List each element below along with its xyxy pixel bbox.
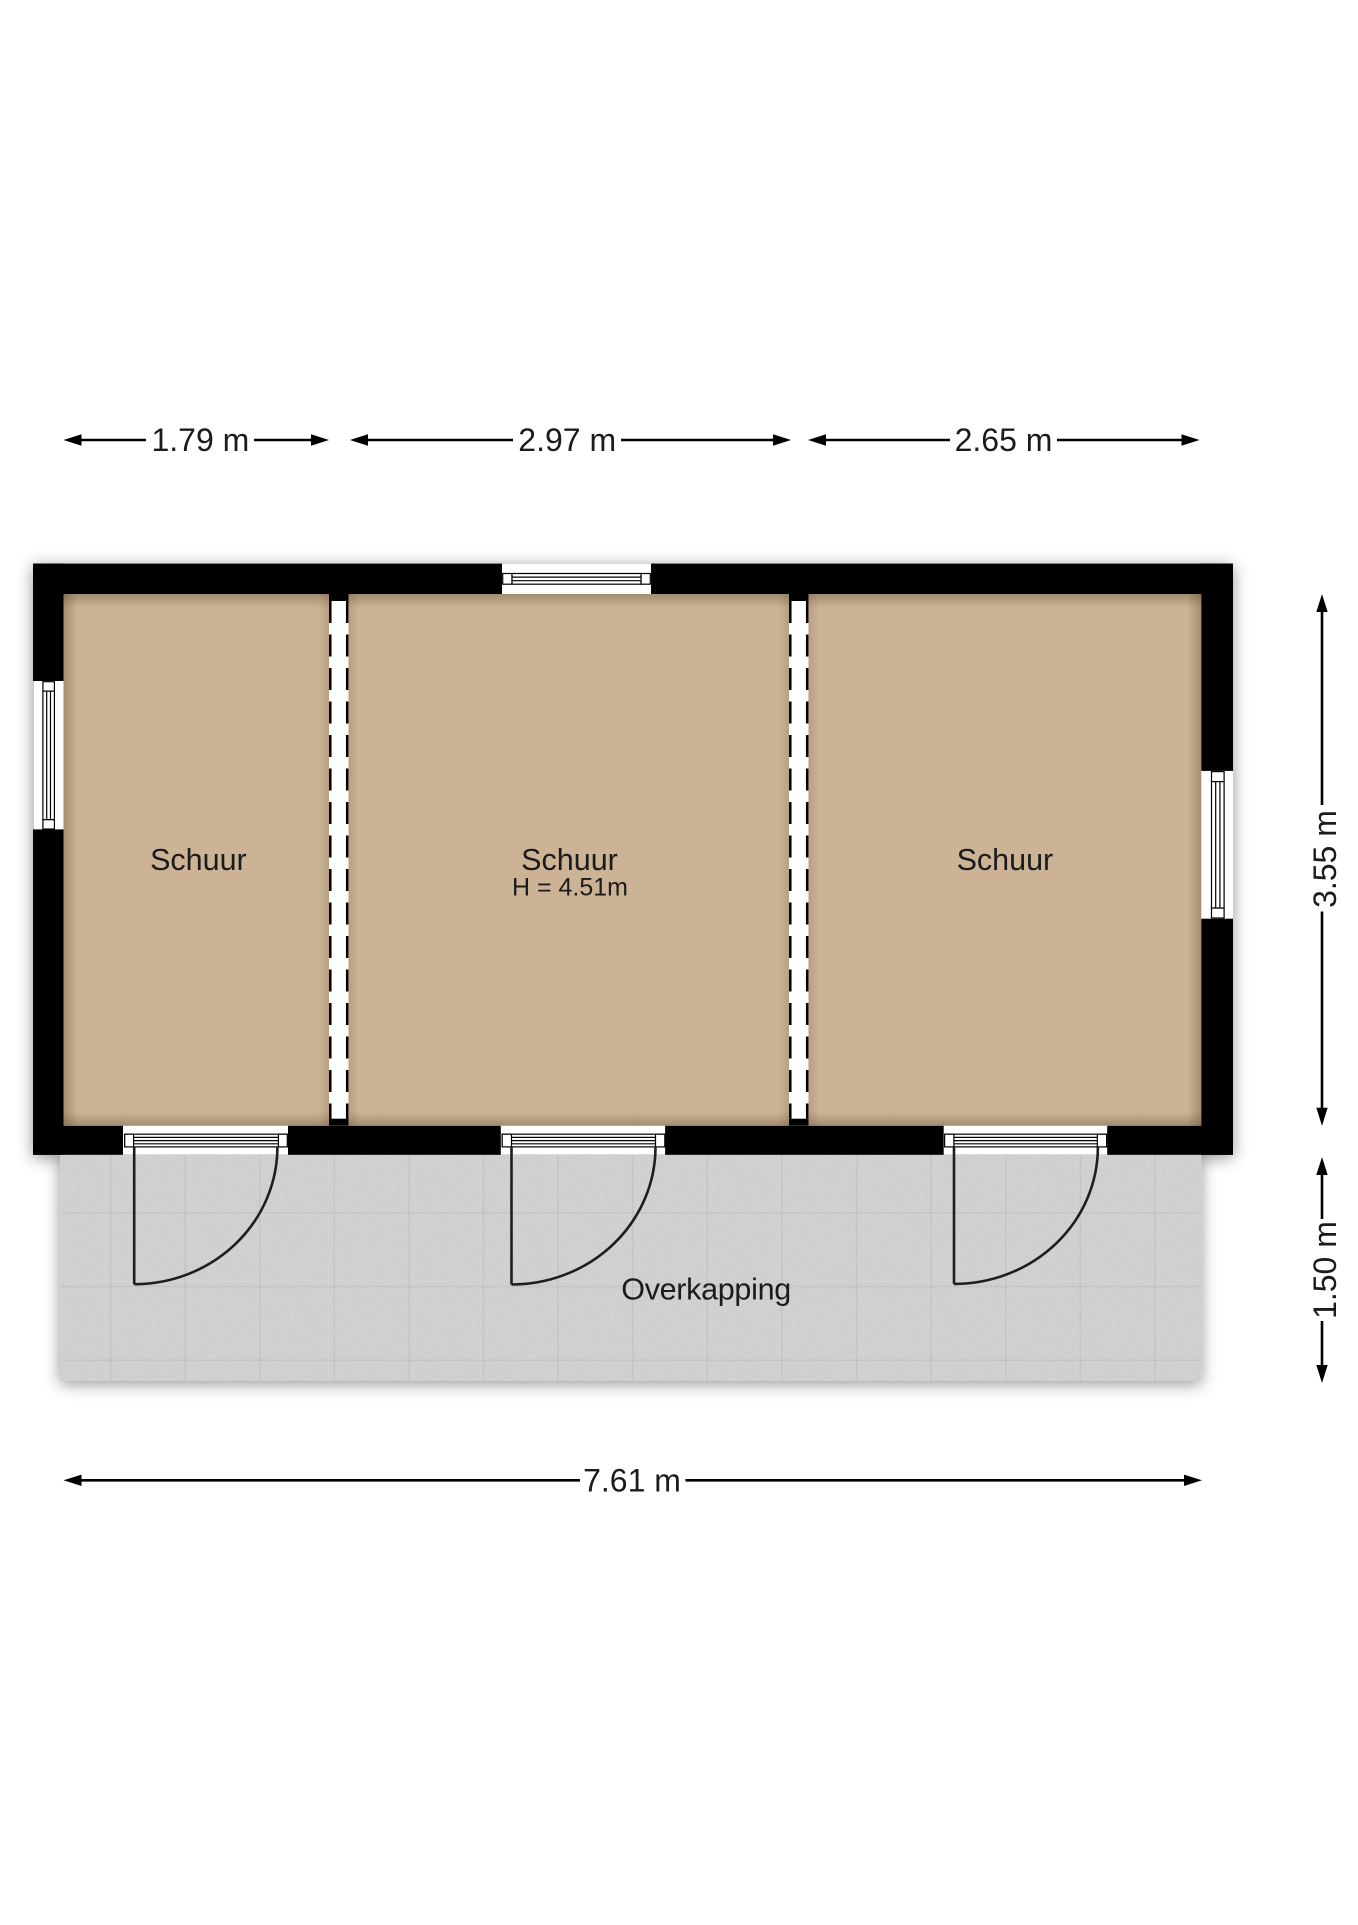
- svg-text:2.97 m: 2.97 m: [518, 422, 616, 458]
- svg-text:Schuur: Schuur: [957, 843, 1054, 877]
- svg-text:H = 4.51m: H = 4.51m: [512, 874, 628, 902]
- svg-text:Schuur: Schuur: [150, 843, 247, 877]
- svg-text:2.65 m: 2.65 m: [955, 422, 1053, 458]
- svg-text:1.50 m: 1.50 m: [1307, 1221, 1343, 1319]
- svg-text:Schuur: Schuur: [521, 843, 618, 877]
- svg-text:1.79 m: 1.79 m: [151, 422, 249, 458]
- svg-text:3.55 m: 3.55 m: [1307, 810, 1343, 908]
- svg-text:Overkapping: Overkapping: [621, 1273, 791, 1307]
- svg-text:7.61 m: 7.61 m: [583, 1462, 681, 1498]
